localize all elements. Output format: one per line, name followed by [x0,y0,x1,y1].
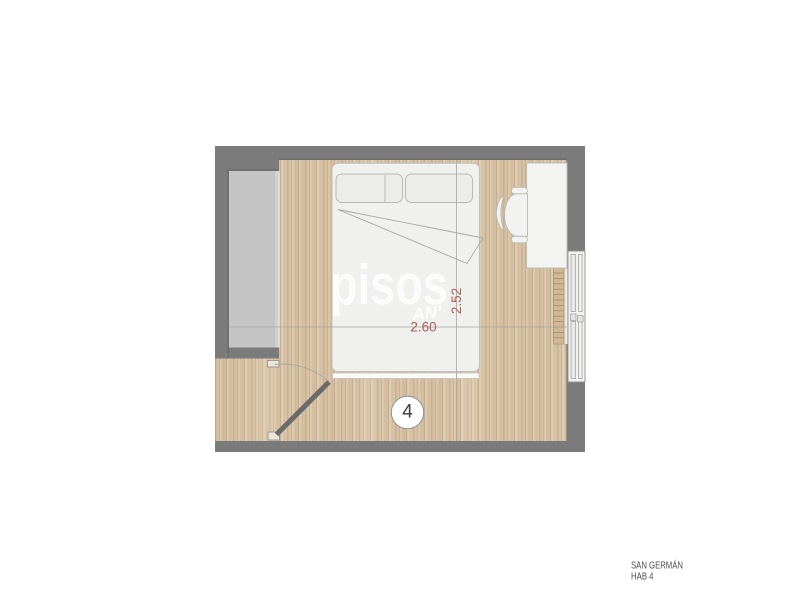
svg-text:SAN GERMÁN: SAN GERMÁN [631,558,683,571]
svg-text:2.52: 2.52 [449,288,464,314]
svg-text:HAB 4: HAB 4 [631,571,654,582]
svg-text:4: 4 [402,401,413,422]
svg-text:2.60: 2.60 [410,320,436,335]
